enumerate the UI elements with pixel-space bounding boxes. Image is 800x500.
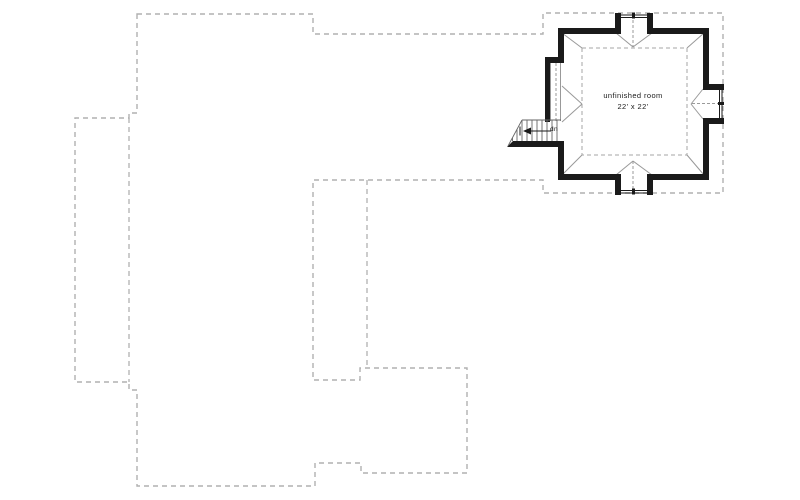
valley-line-top-dormer-left (616, 33, 633, 47)
bottom-dormer-window-mullion (632, 189, 635, 195)
wall-bottom-right (653, 174, 709, 180)
top-dormer-cheek-right (647, 13, 653, 34)
stairs (508, 63, 561, 146)
wall-left-upper (558, 28, 564, 59)
valley-line-bottom-dormer-right (633, 161, 652, 175)
room-dimensions-label: 22' x 22' (563, 102, 703, 111)
top-dormer-window-mullion (632, 13, 635, 19)
bottom-dormer-cheek-left (615, 174, 621, 195)
footprint-outline (75, 13, 723, 486)
hip-line-top-left (562, 33, 582, 48)
wall-right-upper (703, 28, 709, 85)
right-bay-stub-top (703, 84, 724, 90)
stairwell-outer-wall (545, 57, 550, 122)
footprint-outline-polygon (75, 13, 723, 486)
valley-line-top-dormer-right (633, 33, 652, 47)
floor-plan-drawing (0, 0, 800, 500)
right-bay-window-mullion (718, 102, 724, 105)
wall-top-right (653, 28, 709, 34)
room-label: unfinished room (563, 91, 703, 100)
top-dormer-window (621, 13, 647, 19)
right-bay-window (718, 90, 724, 118)
floor-plan-canvas: unfinished room 22' x 22' dn (0, 0, 800, 500)
bottom-dormer-cheek-right (647, 174, 653, 195)
hip-line-top-right (687, 33, 704, 48)
wall-top-left (558, 28, 615, 34)
wall-bottom-left (558, 174, 615, 180)
wall-right-lower (703, 123, 709, 180)
hip-line-bottom-left (562, 155, 582, 175)
stair-direction-arrow (520, 127, 551, 136)
valley-line-bottom-dormer-left (616, 161, 633, 175)
top-dormer-cheek-left (615, 13, 621, 34)
hip-line-bottom-right (687, 155, 704, 175)
stair-bottom-wall (507, 141, 564, 147)
stair-direction-label: dn (550, 126, 558, 133)
